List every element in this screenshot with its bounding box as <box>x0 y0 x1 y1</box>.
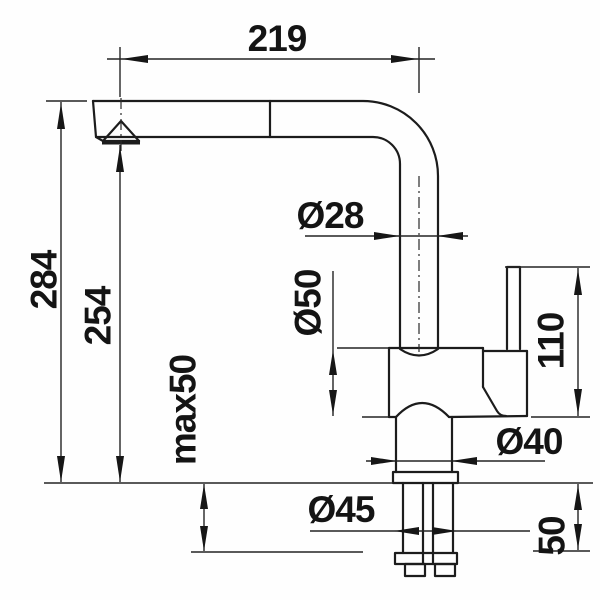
arrow-d28-left <box>374 232 400 240</box>
arrow-d28-right <box>437 232 463 240</box>
arrow-110-bottom <box>574 389 582 415</box>
arrow-d45-left <box>394 527 419 535</box>
arrow-max50-top <box>200 484 208 509</box>
locknut-tab-right <box>435 564 455 576</box>
lever-rod <box>507 267 520 349</box>
dim-label-shank-diameter: Ø45 <box>308 489 375 530</box>
arrow-284-bottom <box>57 456 65 482</box>
locknut-tab-left <box>405 564 425 576</box>
arrow-50-bottom <box>574 524 582 549</box>
dim-label-spout-tube-diameter: Ø28 <box>297 195 364 236</box>
spout-tip-edge <box>93 101 103 141</box>
spout-inner-edge <box>96 137 400 348</box>
dim-label-lever-height: 110 <box>531 312 572 369</box>
drawing-canvas: 219 284 254 max50 Ø28 Ø50 110 Ø40 Ø45 50 <box>0 0 600 600</box>
dim-label-total-height: 284 <box>24 249 65 309</box>
dimension-labels: 219 284 254 max50 Ø28 Ø50 110 Ø40 Ø45 50 <box>24 18 573 556</box>
body-dome <box>396 403 449 417</box>
arrow-d50-bottom <box>329 390 337 415</box>
arrow-219-right <box>391 55 418 63</box>
arrow-d40-right <box>451 457 477 465</box>
arrow-110-top <box>574 269 582 295</box>
arrow-50-top <box>574 485 582 510</box>
dim-label-spout-height: 254 <box>78 285 119 345</box>
arrow-219-left <box>121 55 148 63</box>
cartridge-diagonal <box>483 387 506 416</box>
arrow-max50-bottom <box>200 526 208 551</box>
locknut-washer <box>395 553 457 564</box>
technical-drawing: 219 284 254 max50 Ø28 Ø50 110 Ø40 Ø45 50 <box>0 0 600 600</box>
arrow-284-top <box>57 103 65 129</box>
base-flange <box>393 472 458 483</box>
arrow-d50-top <box>329 350 337 375</box>
body-bottom-right <box>449 416 527 417</box>
dim-label-spout-reach: 219 <box>248 18 307 59</box>
dim-label-under-counter-depth: 50 <box>532 516 573 556</box>
dim-label-max-deck-thickness: max50 <box>163 354 204 465</box>
dim-label-neck-diameter: Ø40 <box>496 421 563 462</box>
arrow-254-bottom <box>116 456 124 482</box>
arrow-d40-left <box>371 457 397 465</box>
dim-label-body-diameter: Ø50 <box>288 269 329 336</box>
arrow-254-top <box>116 146 124 172</box>
